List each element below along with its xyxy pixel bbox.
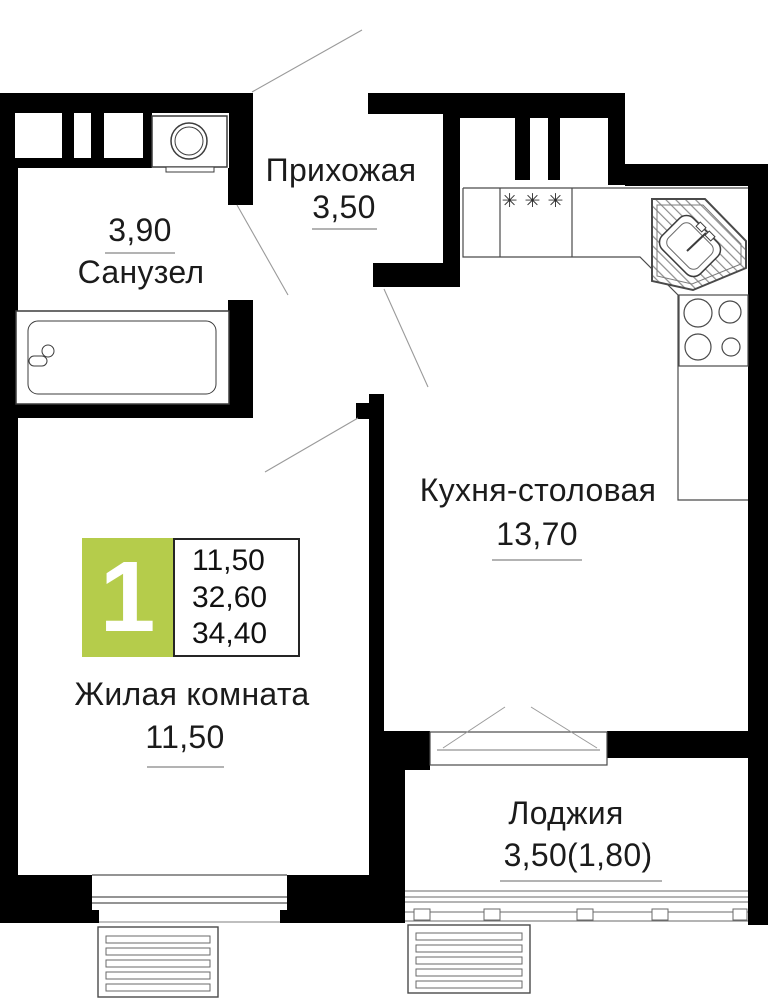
badge-areas: 11,50 32,60 34,40 [173, 538, 300, 657]
badge-area: 32,60 [192, 583, 298, 613]
kitchen-underline [492, 559, 582, 561]
badge-room-count: 1 [82, 538, 173, 657]
living-underline [147, 766, 224, 768]
hallway-area-label: 3,50 [312, 191, 375, 223]
badge-total-area: 34,40 [192, 619, 298, 649]
hallway-name-label: Прихожая [266, 154, 417, 186]
loggia-name-label: Лоджия [508, 797, 623, 829]
living-area-label: 11,50 [145, 721, 224, 753]
balcony-door-window [430, 707, 607, 765]
living-name-label: Жилая комната [74, 678, 309, 710]
radiator-icon-loggia [408, 925, 530, 993]
floor-plan: 3,90 Санузел Прихожая 3,50 ✳✳✳ Кухня-сто… [0, 0, 770, 1000]
radiator-icon-living [98, 927, 218, 997]
kitchen-vent-marks: ✳✳✳ [502, 190, 571, 212]
apartment-badge: 1 11,50 32,60 34,40 [82, 538, 300, 657]
badge-living-area: 11,50 [192, 546, 298, 576]
living-window [92, 875, 287, 923]
kitchen-name-label: Кухня-столовая [420, 474, 656, 506]
stove-icon [679, 295, 748, 366]
loggia-glazing [405, 891, 748, 921]
bathroom-area-label: 3,90 [108, 214, 171, 246]
kitchen-sink-icon [652, 199, 746, 290]
loggia-underline [500, 880, 662, 882]
bathtub-icon [16, 311, 229, 404]
washing-machine-icon [152, 116, 227, 172]
kitchen-area-label: 13,70 [496, 518, 578, 550]
bathroom-name-label: Санузел [78, 256, 205, 288]
hallway-underline [312, 228, 377, 230]
loggia-area-label: 3,50(1,80) [504, 839, 653, 871]
